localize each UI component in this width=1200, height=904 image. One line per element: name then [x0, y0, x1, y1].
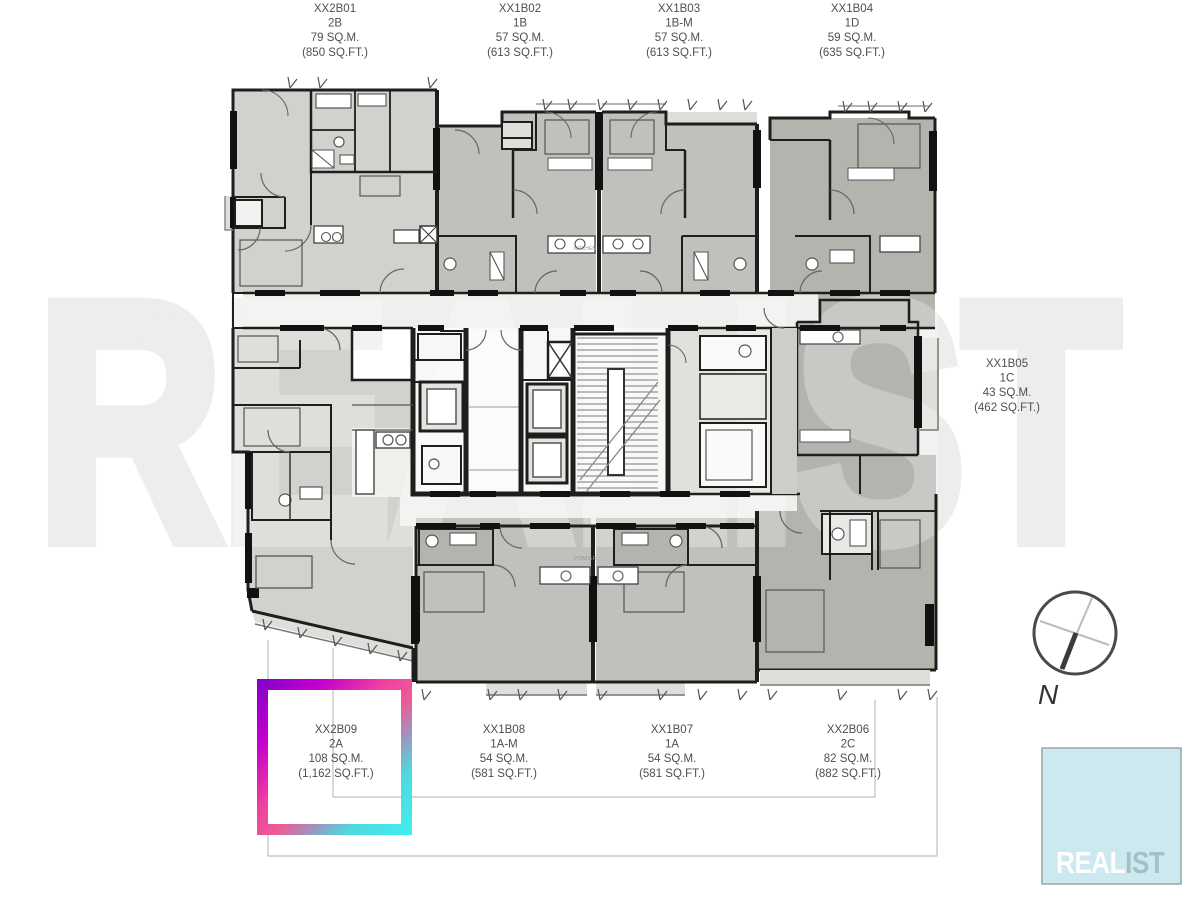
- svg-text:KITCHEN: KITCHEN: [574, 246, 596, 252]
- svg-text:N: N: [1038, 679, 1059, 710]
- svg-text:REALIST: REALIST: [1056, 846, 1165, 881]
- svg-text:POWDER: POWDER: [574, 556, 597, 562]
